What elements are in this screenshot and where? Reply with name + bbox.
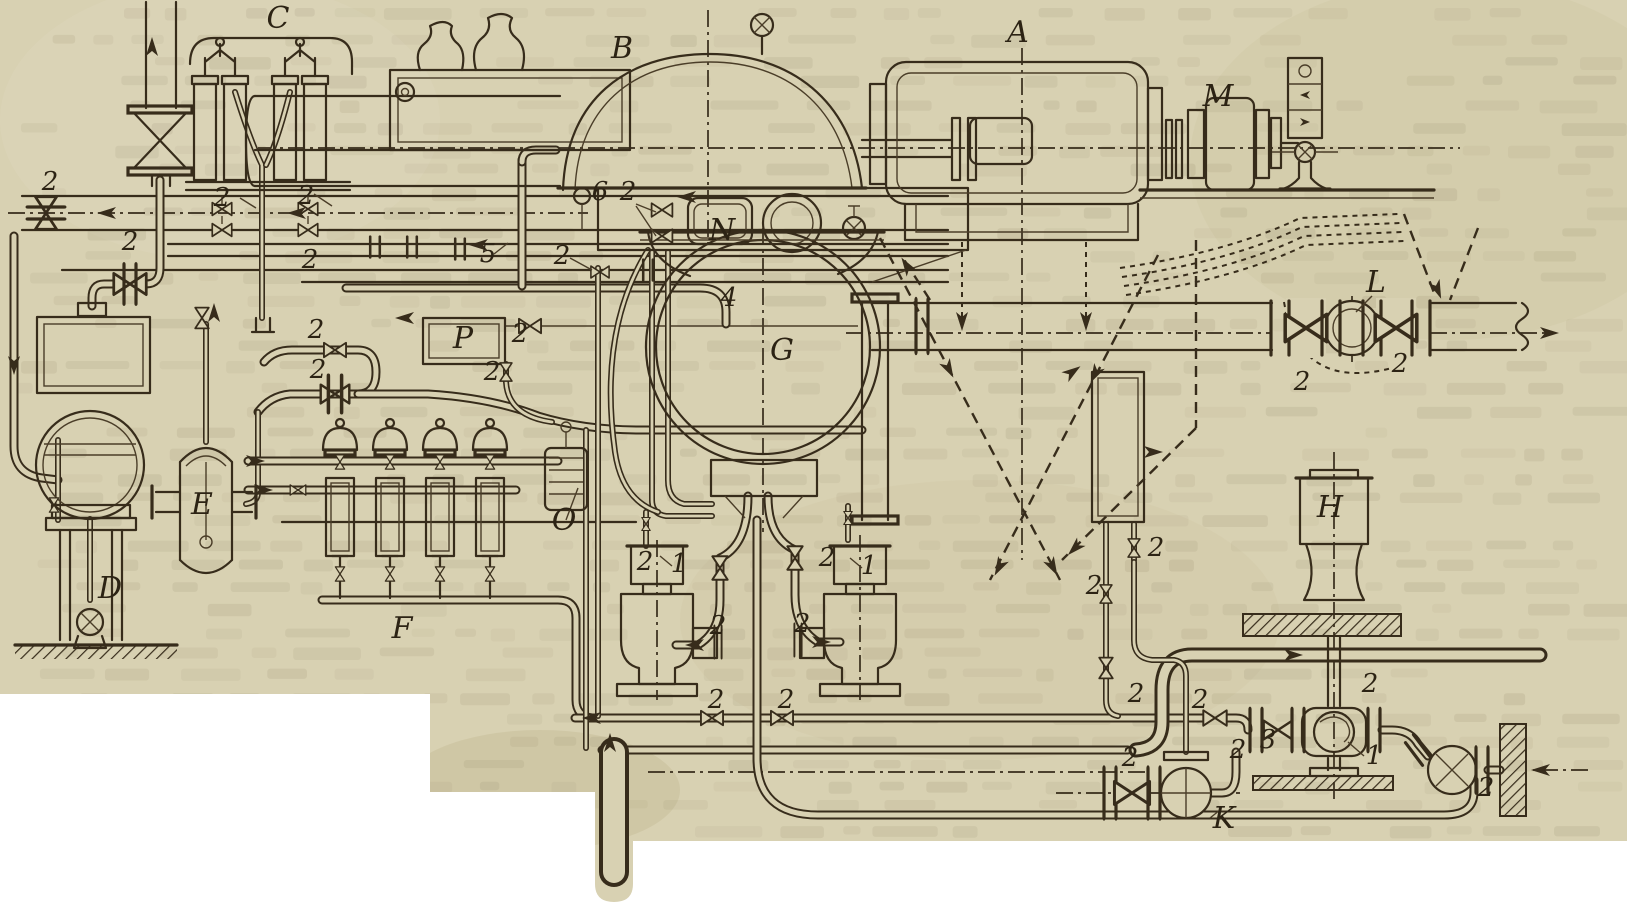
label-letter-H: H [1316,490,1344,525]
label-number-3: 3 [1260,725,1277,755]
label-number-2: 2 [818,543,836,573]
label-number-2: 2 [1085,571,1103,601]
label-letter-O: O [552,503,577,538]
label-letter-K: K [1212,801,1237,836]
label-number-1: 1 [861,551,878,581]
label-number-2: 2 [301,245,319,275]
label-letter-B: B [610,31,633,66]
label-number-2: 2 [777,685,795,715]
label-letter-P: P [452,321,474,356]
label-letter-C: C [267,1,290,36]
label-number-5: 5 [480,239,497,269]
label-letter-N: N [708,213,737,248]
label-number-2: 2 [1293,367,1311,397]
label-number-2: 2 [213,183,231,213]
label-letter-A: A [1004,15,1029,50]
label-number-2: 2 [709,611,727,641]
label-number-2: 2 [553,241,571,271]
label-letter-F: F [391,611,414,646]
label-number-2: 2 [1229,735,1247,765]
label-number-2: 2 [483,357,501,387]
label-number-2: 2 [121,227,139,257]
label-number-2: 2 [1361,669,1379,699]
label-number-2: 2 [1127,679,1145,709]
label-number-2: 2 [707,685,725,715]
label-letter-E: E [190,487,213,522]
label-number-6: 6 [592,177,609,207]
label-number-2: 2 [619,177,637,207]
label-letter-M: M [1202,79,1235,114]
label-number-2: 2 [1391,349,1409,379]
scanned-diagram-page: ABCDEFGHKLMNOP22222222222222222222222222… [0,0,1627,907]
label-number-2: 2 [1147,533,1165,563]
label-number-4: 4 [720,283,738,313]
label-number-2: 2 [636,547,654,577]
label-number-2: 2 [307,315,325,345]
label-number-2: 2 [511,319,529,349]
label-number-2: 2 [297,181,315,211]
label-letter-G: G [770,333,794,368]
label-number-2: 2 [1191,685,1209,715]
label-number-1: 1 [671,549,688,579]
label-number-2: 2 [1121,743,1139,773]
label-number-2: 2 [309,355,327,385]
label-number-2: 2 [793,609,811,639]
ground-hatching [15,645,177,659]
label-number-2: 2 [41,167,59,197]
label-letter-L: L [1365,265,1386,300]
label-number-2: 2 [1477,773,1495,803]
label-letter-D: D [97,571,122,606]
label-number-1: 1 [1366,741,1383,771]
